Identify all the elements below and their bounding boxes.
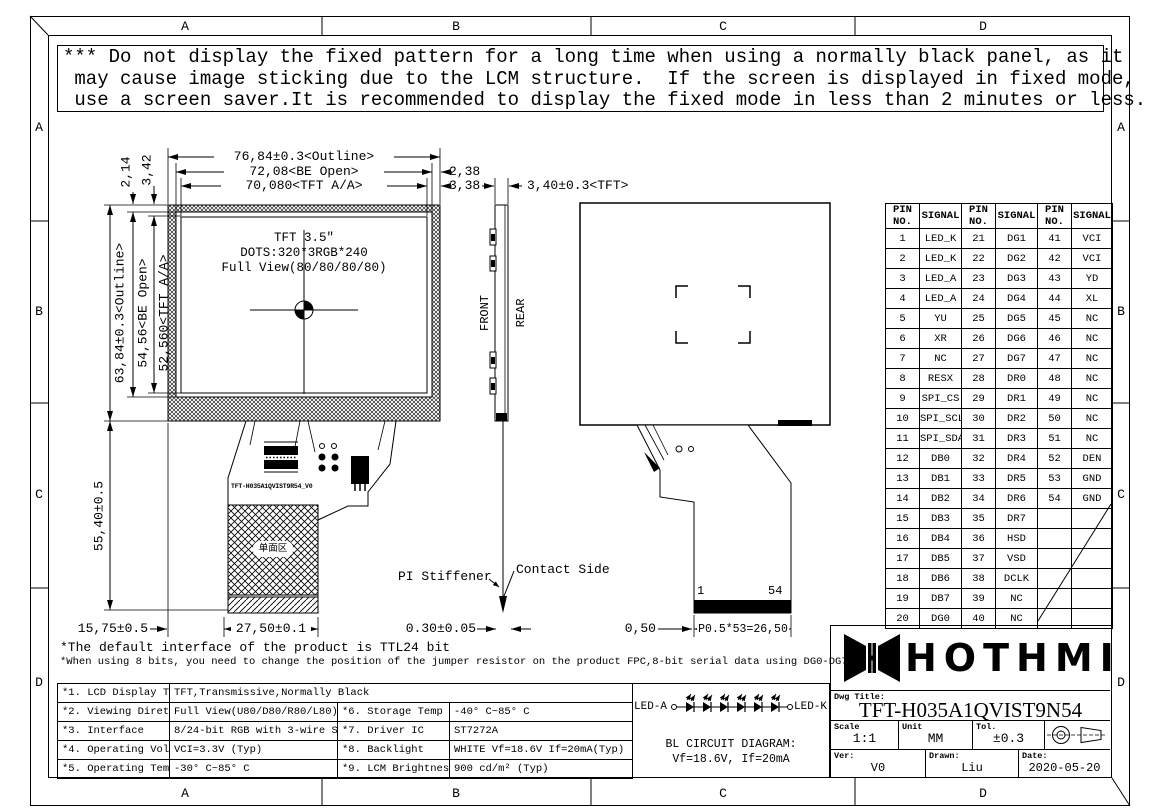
dim-top-margin: 2,14	[119, 156, 134, 187]
pin-table-cell: 24	[962, 289, 996, 309]
pin-table-cell: NC	[1072, 389, 1113, 409]
pin-table-header-row: PIN NO. SIGNAL PIN NO. SIGNAL PIN NO. SI…	[886, 204, 1113, 229]
pin-table-cell: 35	[962, 509, 996, 529]
spec-label: *4. Operating Voltage	[58, 741, 170, 760]
pin-table-cell: 16	[886, 529, 920, 549]
pin-table-row: 19DB739NC	[886, 589, 1113, 609]
panel-view-text: Full View(80/80/80/80)	[204, 261, 404, 276]
pin-table-cell: 5	[886, 309, 920, 329]
pin-table-cell: SPI_SCL	[920, 409, 962, 429]
pin-table-header: PIN NO.	[1038, 204, 1072, 229]
pin-table-cell: DB1	[920, 469, 962, 489]
pin-table-cell: VCI	[1072, 249, 1113, 269]
pin-table-cell: 54	[1038, 489, 1072, 509]
pin-table-cell: 45	[1038, 309, 1072, 329]
ver-label: Ver:	[831, 750, 925, 761]
border-row-label-left-c: C	[30, 487, 48, 502]
dim-tft-aa-height: 52,560<TFT A/A>	[157, 254, 172, 371]
pin-table-cell: 18	[886, 569, 920, 589]
spec-label: *3. Interface	[58, 722, 170, 741]
border-row-label-left-b: B	[30, 304, 48, 319]
pin-table-cell: DR5	[996, 469, 1038, 489]
pin-table-row: 16DB436HSD	[886, 529, 1113, 549]
pin-table-cell: NC	[1072, 329, 1113, 349]
pin-table-cell: DG3	[996, 269, 1038, 289]
pin-table-header: PIN NO.	[962, 204, 996, 229]
pin-table-cell: 47	[1038, 349, 1072, 369]
pin-table-cell: DR7	[996, 509, 1038, 529]
pin-table-row: 5YU25DG545NC	[886, 309, 1113, 329]
pin-table-cell: SPI_CS	[920, 389, 962, 409]
pin-table-cell: 10	[886, 409, 920, 429]
fpc-part-number: TFT-H035A1QVIST9R54_V0	[231, 483, 312, 490]
pin-table-cell: NC	[1072, 429, 1113, 449]
spec-row: *3. Interface 8/24-bit RGB with 3-wire S…	[58, 722, 633, 741]
pin-table-cell: 52	[1038, 449, 1072, 469]
pin-table-cell: DR6	[996, 489, 1038, 509]
pin-table-cell: 11	[886, 429, 920, 449]
border-row-label-right-b: B	[1112, 304, 1130, 319]
pin-table-cell: DR1	[996, 389, 1038, 409]
pin-table-cell: GND	[1072, 489, 1113, 509]
pin-assignment-table: PIN NO. SIGNAL PIN NO. SIGNAL PIN NO. SI…	[885, 203, 1113, 629]
pin-table-cell: 50	[1038, 409, 1072, 429]
dim-outline-width: 76,84±0.3<Outline>	[214, 150, 394, 164]
side-view-rear-label: REAR	[514, 299, 528, 328]
border-col-label-top-d: D	[963, 19, 1003, 34]
pin-table-cell: DB5	[920, 549, 962, 569]
pin-table-cell: 34	[962, 489, 996, 509]
border-col-label-bottom-b: B	[436, 786, 476, 801]
pin-table-cell: 13	[886, 469, 920, 489]
spec-value: TFT,Transmissive,Normally Black	[170, 684, 633, 703]
pin-table-cell: 38	[962, 569, 996, 589]
spec-label: *7. Driver IC	[338, 722, 450, 741]
border-col-label-top-b: B	[436, 19, 476, 34]
dim-fpc-thickness: 0.30±0.05	[398, 622, 476, 636]
dim-right-margin: 2,38	[449, 165, 480, 179]
pin-table-cell: GND	[1072, 469, 1113, 489]
logo-row: HOTHMI	[831, 626, 1110, 690]
spec-label: *9. LCM Brightness	[338, 760, 450, 779]
pin-table-cell: 25	[962, 309, 996, 329]
pin-table-cell: DG6	[996, 329, 1038, 349]
border-col-label-top-c: C	[703, 19, 743, 34]
title-block: HOTHMI Dwg Title: TFT-H035A1QVIST9N54 Sc…	[830, 625, 1112, 778]
tol-cell: Tol. ±0.3	[973, 721, 1045, 750]
pin-table-cell	[1072, 589, 1113, 609]
border-row-label-right-a: A	[1112, 120, 1130, 135]
pin-table-row: 17DB537VSD	[886, 549, 1113, 569]
drawn-label: Drawn:	[926, 750, 1018, 761]
pin-table-row: 10SPI_SCL30DR250NC	[886, 409, 1113, 429]
pin-table-header: SIGNAL	[1072, 204, 1113, 229]
pin-table-cell	[1038, 589, 1072, 609]
pin-table-cell: 41	[1038, 229, 1072, 249]
pin-table-cell: 31	[962, 429, 996, 449]
spec-label: *8. Backlight	[338, 741, 450, 760]
drawn-value: Liu	[926, 761, 1018, 775]
pin-table-cell: DB7	[920, 589, 962, 609]
pin-table-cell: 29	[962, 389, 996, 409]
dim-thickness: 3,40±0.3<TFT>	[527, 179, 628, 193]
pin-table-cell: NC	[996, 589, 1038, 609]
spec-value: 900 cd/m² (Typ)	[450, 760, 633, 779]
date-cell: Date: 2020-05-20	[1019, 750, 1110, 777]
pin-table-cell: DG1	[996, 229, 1038, 249]
third-angle-projection-icon	[1045, 721, 1109, 749]
bl-circuit-title: BL CIRCUIT DIAGRAM:	[650, 738, 812, 751]
pin-table-cell: LED_K	[920, 229, 962, 249]
pin-table-cell: LED_A	[920, 289, 962, 309]
dim-aa-margin: 3,38	[449, 179, 480, 193]
ver-value: V0	[831, 761, 925, 775]
projection-cell	[1045, 721, 1110, 750]
pin-table-cell: YD	[1072, 269, 1113, 289]
pin-table-cell	[1072, 529, 1113, 549]
warning-line-3: use a screen saver.It is recommended to …	[63, 90, 1098, 112]
spec-row: *2. Viewing Diretion Full View(U80/D80/R…	[58, 703, 633, 722]
pin-table-cell	[1072, 509, 1113, 529]
pin-table-row: 1LED_K21DG141VCI	[886, 229, 1113, 249]
note-line-2: *When using 8 bits, you need to change t…	[60, 656, 848, 668]
pi-stiffener-label: PI Stiffener	[398, 570, 488, 584]
panel-size-text: TFT 3.5″	[204, 231, 404, 246]
dim-fpc-left-offset: 15,75±0.5	[56, 622, 148, 636]
pin-table-cell: 44	[1038, 289, 1072, 309]
pin-table-cell: 37	[962, 549, 996, 569]
pin-table-header: PIN NO.	[886, 204, 920, 229]
pin-table-cell: 39	[962, 589, 996, 609]
spec-row: *4. Operating Voltage VCI=3.3V (Typ) *8.…	[58, 741, 633, 760]
spec-value: ST7272A	[450, 722, 633, 741]
tol-value: ±0.3	[973, 732, 1044, 746]
pin-table-cell: 49	[1038, 389, 1072, 409]
pin-table-row: 18DB638DCLK	[886, 569, 1113, 589]
pin-table-cell: 2	[886, 249, 920, 269]
border-col-label-bottom-c: C	[703, 786, 743, 801]
pin-table-row: 9SPI_CS29DR149NC	[886, 389, 1113, 409]
pin-table-row: 12DB032DR452DEN	[886, 449, 1113, 469]
scale-cell: Scale 1:1	[831, 721, 899, 750]
pin-table-cell: LED_K	[920, 249, 962, 269]
pin-table-cell: NC	[1072, 369, 1113, 389]
pin-table-cell: 42	[1038, 249, 1072, 269]
side-view-front-label: FRONT	[478, 295, 492, 331]
pin-table-cell: DG5	[996, 309, 1038, 329]
spec-value: -30° C~85° C	[170, 760, 338, 779]
pin-table-cell: 46	[1038, 329, 1072, 349]
pin-table-cell	[1072, 569, 1113, 589]
pin-table-cell: NC	[1072, 409, 1113, 429]
note-line-1: *The default interface of the product is…	[60, 640, 450, 655]
pin-table-header: SIGNAL	[920, 204, 962, 229]
dwg-title-row: Dwg Title: TFT-H035A1QVIST9N54	[831, 690, 1110, 720]
pin-table-cell: 51	[1038, 429, 1072, 449]
pin-table-cell: 36	[962, 529, 996, 549]
pin-table-cell: DB6	[920, 569, 962, 589]
pin-table-row: 11SPI_SDA31DR351NC	[886, 429, 1113, 449]
pin-table-row: 8RESX28DR048NC	[886, 369, 1113, 389]
pin-table-row: 14DB234DR654GND	[886, 489, 1113, 509]
dim-be-open-height: 54,56<BE Open>	[136, 258, 151, 367]
rear-first-pin-label: 1	[697, 584, 704, 598]
pin-table-cell: 12	[886, 449, 920, 469]
spec-value: 8/24-bit RGB with 3-wire SPI	[170, 722, 338, 741]
pin-table-cell: 6	[886, 329, 920, 349]
border-row-label-left-a: A	[30, 120, 48, 135]
border-col-label-top-a: A	[165, 19, 205, 34]
pin-table-body: 1LED_K21DG141VCI2LED_K22DG242VCI3LED_A23…	[886, 229, 1113, 629]
pin-table-cell: 26	[962, 329, 996, 349]
pin-table-cell: DR4	[996, 449, 1038, 469]
panel-dots-text: DOTS:320*3RGB*240	[204, 246, 404, 261]
spec-row: *5. Operating Temp -30° C~85° C *9. LCM …	[58, 760, 633, 779]
drawn-cell: Drawn: Liu	[926, 750, 1019, 777]
pin-table-cell: DR0	[996, 369, 1038, 389]
pin-table-cell: 23	[962, 269, 996, 289]
scale-value: 1:1	[831, 732, 898, 746]
pin-table-cell: 8	[886, 369, 920, 389]
contact-side-label: Contact Side	[516, 563, 610, 577]
pin-table-cell: SPI_SDA	[920, 429, 962, 449]
pin-table-cell: YU	[920, 309, 962, 329]
pin-table-cell: LED_A	[920, 269, 962, 289]
pin-table-cell: XR	[920, 329, 962, 349]
pin-table-cell: XL	[1072, 289, 1113, 309]
logo-text: HOTHMI	[905, 636, 1121, 680]
pin-table-cell: 4	[886, 289, 920, 309]
pin-table-cell: HSD	[996, 529, 1038, 549]
hothmi-logo-icon	[843, 632, 901, 684]
pin-table-cell: DCLK	[996, 569, 1038, 589]
pin-table-cell: DB0	[920, 449, 962, 469]
border-col-label-bottom-a: A	[165, 786, 205, 801]
pin-table-cell: DEN	[1072, 449, 1113, 469]
border-row-label-left-d: D	[30, 675, 48, 690]
border-row-label-right-c: C	[1112, 487, 1130, 502]
spec-table: *1. LCD Display Type TFT,Transmissive,No…	[57, 683, 633, 779]
dim-fpc-length: 55,40±0.5	[92, 481, 107, 551]
pin-table-row: 13DB133DR553GND	[886, 469, 1113, 489]
pin-table-row: 3LED_A23DG343YD	[886, 269, 1113, 289]
pin-table-cell: 14	[886, 489, 920, 509]
bl-circuit-subtitle: Vf=18.6V, If=20mA	[650, 753, 812, 766]
warning-line-2: may cause image sticking due to the LCM …	[63, 69, 1098, 91]
spec-value: VCI=3.3V (Typ)	[170, 741, 338, 760]
pin-table-cell: 27	[962, 349, 996, 369]
pin-table-cell: 17	[886, 549, 920, 569]
pin-table-cell: 28	[962, 369, 996, 389]
pin-table-cell: 1	[886, 229, 920, 249]
date-value: 2020-05-20	[1019, 761, 1110, 775]
rear-last-pin-label: 54	[768, 584, 782, 598]
pin-table-row: 6XR26DG646NC	[886, 329, 1113, 349]
spec-label: *1. LCD Display Type	[58, 684, 170, 703]
panel-spec-text: TFT 3.5″ DOTS:320*3RGB*240 Full View(80/…	[204, 231, 404, 276]
pin-table-cell: DG4	[996, 289, 1038, 309]
dim-aa-top-margin: 3,42	[140, 154, 155, 185]
dim-tft-aa-width: 70,080<TFT A/A>	[221, 179, 387, 193]
pin-table-cell	[1072, 549, 1113, 569]
dim-pin-edge: 0,50	[616, 622, 656, 636]
pin-table-cell: DR3	[996, 429, 1038, 449]
pin-table-cell: DG7	[996, 349, 1038, 369]
warning-line-1: *** Do not display the fixed pattern for…	[63, 47, 1098, 69]
pin-table-cell: NC	[1072, 309, 1113, 329]
pin-table-cell: 15	[886, 509, 920, 529]
pin-table-cell: DG2	[996, 249, 1038, 269]
border-col-label-bottom-d: D	[963, 786, 1003, 801]
pin-table-row: 2LED_K22DG242VCI	[886, 249, 1113, 269]
pin-table-cell: 22	[962, 249, 996, 269]
pin-table-cell: DR2	[996, 409, 1038, 429]
pin-table-cell	[1038, 509, 1072, 529]
pin-table-row: 7NC27DG747NC	[886, 349, 1113, 369]
pin-table-row: 15DB335DR7	[886, 509, 1113, 529]
pin-table-cell: 32	[962, 449, 996, 469]
scale-row: Scale 1:1 Unit MM Tol. ±0.3	[831, 720, 1110, 749]
fpc-stiffener-label: 单面区	[253, 541, 293, 557]
pin-table-cell: 19	[886, 589, 920, 609]
dim-be-open-width: 72,08<BE Open>	[224, 165, 384, 179]
pin-table-cell: 7	[886, 349, 920, 369]
spec-label: *2. Viewing Diretion	[58, 703, 170, 722]
pin-table-cell: 30	[962, 409, 996, 429]
bl-led-k-label: LED-K	[794, 701, 827, 713]
pin-table-cell	[1038, 569, 1072, 589]
warning-note-box: *** Do not display the fixed pattern for…	[57, 45, 1104, 112]
pin-table-cell: 9	[886, 389, 920, 409]
pin-table-cell: VCI	[1072, 229, 1113, 249]
pin-table-cell: 33	[962, 469, 996, 489]
dim-outline-height: 63,84±0.3<Outline>	[113, 243, 128, 383]
dim-pin-pitch: P0.5*53=26,50	[697, 623, 789, 637]
spec-value: WHITE Vf=18.6V If=20mA(Typ)	[450, 741, 633, 760]
pin-table-cell	[1038, 549, 1072, 569]
bl-led-a-label: LED-A	[634, 701, 667, 713]
pin-table-header: SIGNAL	[996, 204, 1038, 229]
pin-table-cell: 43	[1038, 269, 1072, 289]
pin-table-cell: 48	[1038, 369, 1072, 389]
pin-table-cell: VSD	[996, 549, 1038, 569]
ver-cell: Ver: V0	[831, 750, 926, 777]
pin-table-cell: 21	[962, 229, 996, 249]
pin-table-cell	[1038, 529, 1072, 549]
ver-row: Ver: V0 Drawn: Liu Date: 2020-05-20	[831, 749, 1110, 776]
engineering-drawing-page: A B C D A B C D A B C D A B C D *** Do n…	[0, 0, 1159, 810]
spec-value: -40° C~85° C	[450, 703, 633, 722]
dim-stiffener-width: 27,50±0.1	[231, 622, 311, 636]
pin-table-cell: 3	[886, 269, 920, 289]
pin-table-row: 4LED_A24DG444XL	[886, 289, 1113, 309]
spec-row: *1. LCD Display Type TFT,Transmissive,No…	[58, 684, 633, 703]
pin-table-cell: DB3	[920, 509, 962, 529]
spec-label: *6. Storage Temp	[338, 703, 450, 722]
pin-table-cell: RESX	[920, 369, 962, 389]
pin-table-cell: NC	[920, 349, 962, 369]
spec-label: *5. Operating Temp	[58, 760, 170, 779]
pin-table-cell: DB2	[920, 489, 962, 509]
spec-value: Full View(U80/D80/R80/L80)	[170, 703, 338, 722]
pin-table-cell: NC	[1072, 349, 1113, 369]
unit-cell: Unit MM	[899, 721, 973, 750]
date-label: Date:	[1019, 750, 1110, 761]
unit-value: MM	[899, 732, 972, 746]
pin-table-cell: 53	[1038, 469, 1072, 489]
pin-table-cell: DB4	[920, 529, 962, 549]
